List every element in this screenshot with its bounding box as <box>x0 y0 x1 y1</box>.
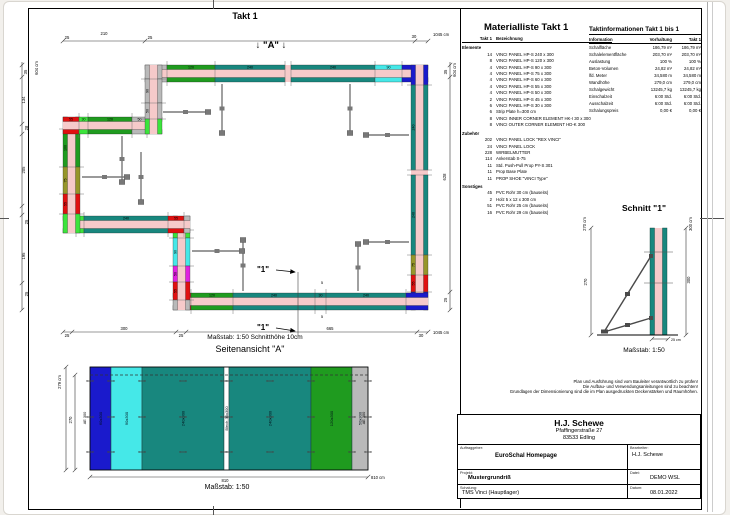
prop-turnbuckle <box>139 175 144 179</box>
takt-info-cell: Einschalzeit <box>589 93 638 100</box>
dim-label: 28 <box>24 125 29 130</box>
takt-info-cell: 279,0 cm <box>638 79 672 86</box>
side-view: 60x30090x300240x300Blech 30x300240x30012… <box>83 367 372 470</box>
takt-info-cell: 100 % <box>638 58 672 65</box>
wall-panel <box>76 194 81 214</box>
side-panel-label: 240x300 <box>181 410 186 426</box>
item-qty: 16 <box>462 210 492 216</box>
disclaimer: Plan und Ausführung sind vom Bauleiter v… <box>430 379 698 394</box>
dim-label: 810 cm <box>371 475 385 480</box>
dim-label: 25 cm <box>671 338 681 342</box>
takt-info-cell: 24,82 m³ <box>638 65 672 72</box>
dim-label: 205 <box>21 166 26 174</box>
plan-scale-note: Maßstab: 1:50 Schnitthöhe 10cm <box>170 334 340 341</box>
panel-size-label: 240 <box>271 294 277 298</box>
wall-panel <box>191 306 233 311</box>
title-block: H.J. Schewe Pfaffingerstraße 27 83533 Ed… <box>457 414 701 499</box>
takt-info-row: Schalfläche186,79 m²186,79 m² <box>589 44 701 51</box>
wall-panel <box>79 130 88 135</box>
dim-label: 604 cm <box>452 63 457 77</box>
dim-label: 810 <box>222 478 230 483</box>
dim-label: 25 <box>24 291 29 296</box>
wall-panel <box>158 79 163 103</box>
takt-info-cell: Beton-Volumen <box>589 65 638 72</box>
datum-value: 08.01.2022 <box>630 490 700 496</box>
company-name: H.J. Schewe <box>458 415 700 428</box>
wall-panel <box>326 306 406 311</box>
takt-info-row: Schalgewicht13245,7 kg13245,7 kg <box>589 86 701 93</box>
panel-size-label: 90 <box>174 250 178 254</box>
prop-base-plate <box>138 200 144 205</box>
title-block-row-schalung: Schalung: TMS Vinci (Hauptlager) Datum: … <box>458 485 700 498</box>
dim-label: 300 cm <box>688 217 693 231</box>
dim-label: 195 <box>21 252 26 260</box>
plan-text: "1" <box>257 323 269 332</box>
wall-panel <box>406 306 428 311</box>
material-item: 16PVC Rohr 29 cm (bauseits) <box>462 210 612 216</box>
wall-panel <box>168 229 184 234</box>
wall-panel <box>406 293 428 298</box>
title-block-header: H.J. Schewe Pfaffingerstraße 27 83533 Ed… <box>458 415 700 445</box>
panel-size-label: 75 <box>64 179 68 183</box>
takt-info-body: Schalfläche186,79 m²186,79 m²Schalelemen… <box>589 44 701 114</box>
takt-info-cell: Schalgewicht <box>589 86 638 93</box>
prop-base-plate <box>240 238 246 243</box>
side-panel-label: Blech 30x300 <box>224 406 229 431</box>
wall-panel <box>145 65 150 79</box>
datei-value: DEMO WSL <box>630 475 700 481</box>
prop-base-plate <box>219 131 225 136</box>
prop-turnbuckle <box>215 249 220 253</box>
takt-info-title: Taktinformationen Takt 1 bis 1 <box>589 26 701 35</box>
takt-info-cell: Schalfläche <box>589 44 638 51</box>
item-qty: 8 <box>462 122 492 128</box>
schnitt-scale: Maßstab: 1:50 <box>598 347 690 354</box>
dim-label: 604 cm <box>34 61 39 75</box>
takt-info-cell: 279,0 cm <box>672 79 701 86</box>
dim-label: 25 <box>24 219 29 224</box>
side-panel-label: 60x300 <box>98 411 103 425</box>
prop-turnbuckle <box>183 110 188 114</box>
wall-panel <box>186 282 191 300</box>
panel-size-label: 120 <box>209 294 215 298</box>
panel-size-label: 30 <box>319 294 323 298</box>
dim-label: 35 <box>443 69 448 74</box>
dim-label: 30 <box>419 333 424 338</box>
takt-info-row: Ausschalzeit6:00 Std.6:00 Std. <box>589 100 701 107</box>
push-pull-props <box>82 84 409 291</box>
takt-info-row: lfd. Meter34,580 m34,580 m <box>589 72 701 79</box>
item-name: PROP SHOE "VINCI Type" <box>492 176 548 182</box>
dim-label: 300 <box>686 276 691 284</box>
section-marker-a: ↓ "A" ↓ <box>238 40 304 51</box>
panel-size-label: 90 <box>146 89 150 93</box>
takt-info-row: Schalelementfläche203,70 m²203,70 m² <box>589 51 701 58</box>
wall-panel <box>184 229 190 234</box>
takt-info-cell: Wandhöhe <box>589 79 638 86</box>
side-panel-label: 120x300 <box>329 410 334 426</box>
dim-label: 25 <box>443 297 448 302</box>
side-view-scale: Maßstab: 1:50 <box>167 484 287 491</box>
wall-panel <box>173 300 178 310</box>
takt-info-header: Information Vorhaltung Takt 1 <box>589 36 701 44</box>
panel-size-label: 240 <box>412 212 416 218</box>
panel-size-label: 240 <box>247 66 253 70</box>
prop-base-plate <box>205 110 211 115</box>
takt-info-row: Schalungspreis0,00 €0,00 € <box>589 107 701 114</box>
wall-panel <box>76 129 81 167</box>
wall-panel <box>132 130 147 135</box>
prop-turnbuckle <box>385 240 390 244</box>
takt-info-cell: Schalungspreis <box>589 107 638 114</box>
takt-info-cell: 34,580 m <box>672 72 701 79</box>
dim-label: 628 <box>442 173 447 181</box>
takt-info-cell: 186,79 m² <box>638 44 672 51</box>
takt-info-cell: Auslastung <box>589 58 638 65</box>
prop-base-plate <box>119 180 125 185</box>
col-takt: Takt 1 <box>462 36 492 42</box>
wall-panel <box>186 238 191 266</box>
dim-label: 25 <box>148 35 153 40</box>
panel-size-label: 50 <box>146 109 150 113</box>
edge-element-label: AE 300 <box>83 412 87 424</box>
panel-size-label: 30 <box>82 118 86 122</box>
prop-base-plate <box>363 240 369 245</box>
takt-info-cell: Ausschalzeit <box>589 100 638 107</box>
wall-panel <box>315 306 326 311</box>
takt-info: Taktinformationen Takt 1 bis 1 Informati… <box>589 26 701 114</box>
panel-size-label: 50 <box>138 118 142 122</box>
col-vorhaltung: Vorhaltung <box>638 36 672 43</box>
prop-base-plate <box>239 249 245 254</box>
dim-label: 134 <box>21 96 26 104</box>
plan-walls: 3012024024090240240755555120240302405590… <box>59 61 432 314</box>
title-block-row-client: Auftraggeber: EuroSchal Homepage Bearbei… <box>458 445 700 470</box>
col-bezeichnung: Bezeichnung <box>492 36 523 42</box>
auftraggeber-value: EuroSchal Homepage <box>460 450 627 459</box>
takt-info-cell: 0,00 € <box>638 107 672 114</box>
prop-base-plate <box>124 175 130 180</box>
takt-info-cell: 186,79 m² <box>672 44 701 51</box>
wall-panel <box>215 78 285 83</box>
wall-panel <box>84 229 168 234</box>
material-item: 8VINCI OUTER CORNER ELEMENT HD-K 300 <box>462 122 612 128</box>
takt-info-cell: 34,580 m <box>638 72 672 79</box>
prop-base-plate <box>347 131 353 136</box>
wall-panel <box>424 255 429 275</box>
takt-info-cell: 0,00 € <box>672 107 701 114</box>
takt-info-cell: 6:00 Std. <box>672 100 701 107</box>
schnitt-panel <box>663 228 668 335</box>
schalung-value: TMS Vinci (Hauptlager) <box>460 490 627 496</box>
edge-element-label: AE 300 <box>362 412 366 424</box>
wall-panel <box>76 167 81 194</box>
item-qty: 11 <box>462 176 492 182</box>
panel-size-label: 240 <box>412 125 416 131</box>
prop-foot <box>601 330 608 334</box>
takt-info-cell: 6:00 Std. <box>638 100 672 107</box>
takt-info-cell: lfd. Meter <box>589 72 638 79</box>
dim-label: 25 <box>65 333 70 338</box>
dim-label: 30 <box>412 34 417 39</box>
takt-info-row: Beton-Volumen24,82 m³24,82 m³ <box>589 65 701 72</box>
takt-info-row: Einschalzeit6:00 Std.6:00 Std. <box>589 93 701 100</box>
panel-size-label: 100 <box>64 145 68 151</box>
wall-panel <box>233 306 315 311</box>
panel-size-label: 55 <box>174 289 178 293</box>
dim-label: 35 <box>23 69 28 74</box>
takt-info-cell: 13245,7 kg <box>638 86 672 93</box>
panel-size-label: 55 <box>174 217 178 221</box>
dim-label: 279 cm <box>57 375 62 389</box>
panel-size-label: 55 <box>69 118 73 122</box>
wall-panel <box>158 103 163 119</box>
wall-panel <box>186 300 191 310</box>
dim-label: 270 <box>68 416 73 424</box>
col-information: Information <box>589 36 638 43</box>
projekt-value: Mustergrundriß <box>460 475 627 481</box>
prop-turnbuckle <box>120 157 125 161</box>
schnitt-view <box>597 228 678 335</box>
item-name: VINCI OUTER CORNER ELEMENT HD-K 300 <box>492 122 585 128</box>
panel-size-label: 120 <box>188 66 194 70</box>
prop-base-plate <box>355 242 361 247</box>
wall-panel <box>158 119 163 134</box>
prop-turnbuckle <box>220 107 225 111</box>
prop-turnbuckle <box>385 133 390 137</box>
dim-label: 665 <box>327 326 335 331</box>
prop-base-plate <box>363 133 369 138</box>
dim-label: 25 <box>65 35 70 40</box>
disclaimer-line: Grundlagen der Dimensionierung sind die … <box>430 389 698 394</box>
takt-info-cell: 100 % <box>672 58 701 65</box>
prop-turnbuckle <box>102 175 107 179</box>
panel-size-label: 55 <box>412 282 416 286</box>
panel-size-label: 50 <box>174 272 178 276</box>
side-panel-label: 240x300 <box>268 410 273 426</box>
drawing-sheet: { "colors":{"teal":"#18877e","green":"#1… <box>0 0 730 515</box>
takt-info-cell: 13245,7 kg <box>672 86 701 93</box>
takt-info-cell: 6:00 Std. <box>638 93 672 100</box>
panel-size-label: 120 <box>107 118 113 122</box>
wall-panel <box>145 119 150 134</box>
plan-title: Takt 1 <box>214 11 276 21</box>
side-panel-label: 90x300 <box>124 411 129 425</box>
wall-panel <box>76 214 81 233</box>
dim-label: 300 <box>121 326 129 331</box>
company-city: 83533 Edling <box>458 435 700 442</box>
prop-turnbuckle <box>348 107 353 111</box>
dim-label: 270 <box>583 278 588 286</box>
wall-panel <box>186 266 191 282</box>
panel-size-label: 55 <box>64 202 68 206</box>
material-item: 11PROP SHOE "VINCI Type" <box>462 176 612 182</box>
panel-size-label: 240 <box>123 217 129 221</box>
wall-panel <box>375 78 402 83</box>
title-block-row-project: Projekt: Mustergrundriß Datei: DEMO WSL <box>458 470 700 485</box>
takt-info-cell: 24,82 m³ <box>672 65 701 72</box>
prop-turnbuckle <box>241 264 246 268</box>
wall-panel <box>63 130 79 135</box>
prop-turnbuckle <box>356 266 361 270</box>
dim-label: 1045 cm <box>433 32 450 37</box>
col-takt1: Takt 1 <box>672 36 701 43</box>
item-name: PVC Rohr 29 cm (bauseits) <box>492 210 548 216</box>
takt-info-cell: 203,70 m² <box>638 51 672 58</box>
panel-size-label: 240 <box>363 294 369 298</box>
wall-panel <box>63 214 68 233</box>
wall-panel <box>424 85 429 170</box>
panel-size-label: 90 <box>387 66 391 70</box>
dim-label: 270 cm <box>582 217 587 231</box>
dim-label: 1045 cm <box>433 330 450 335</box>
plan-text: "1" <box>257 265 269 274</box>
wall-panel <box>411 65 416 85</box>
dim-label: 210 <box>101 31 109 36</box>
wall-panel <box>167 78 215 83</box>
takt-info-row: Auslastung100 %100 % <box>589 58 701 65</box>
wall-panel <box>424 275 429 292</box>
wall-panel <box>184 216 190 221</box>
takt-info-cell: Schalelementfläche <box>589 51 638 58</box>
side-view-title: Seitenansicht "A" <box>160 344 340 354</box>
wall-panel <box>424 175 429 255</box>
takt-info-cell: 6:00 Std. <box>672 93 701 100</box>
wall-panel <box>88 130 132 135</box>
wall-panel <box>291 78 375 83</box>
takt-info-row: Wandhöhe279,0 cm279,0 cm <box>589 79 701 86</box>
panel-size-label: 75 <box>412 263 416 267</box>
wall-panel <box>158 65 163 79</box>
takt-info-cell: 203,70 m² <box>672 51 701 58</box>
bearbeiter-value: H.J. Schewe <box>630 450 700 458</box>
plan-text: 5 <box>321 280 324 285</box>
plan-text: 5 <box>321 314 324 319</box>
wall-panel <box>424 65 429 85</box>
panel-size-label: 240 <box>330 66 336 70</box>
